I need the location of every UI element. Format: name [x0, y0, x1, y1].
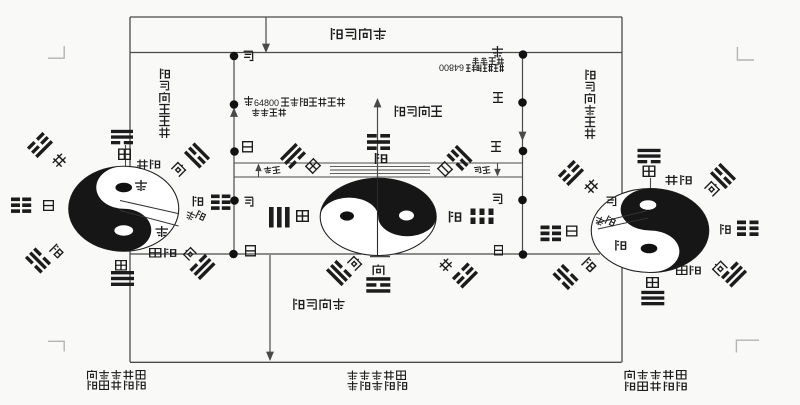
svg-text:64800: 64800 — [439, 63, 464, 73]
svg-text:64800: 64800 — [254, 98, 279, 108]
